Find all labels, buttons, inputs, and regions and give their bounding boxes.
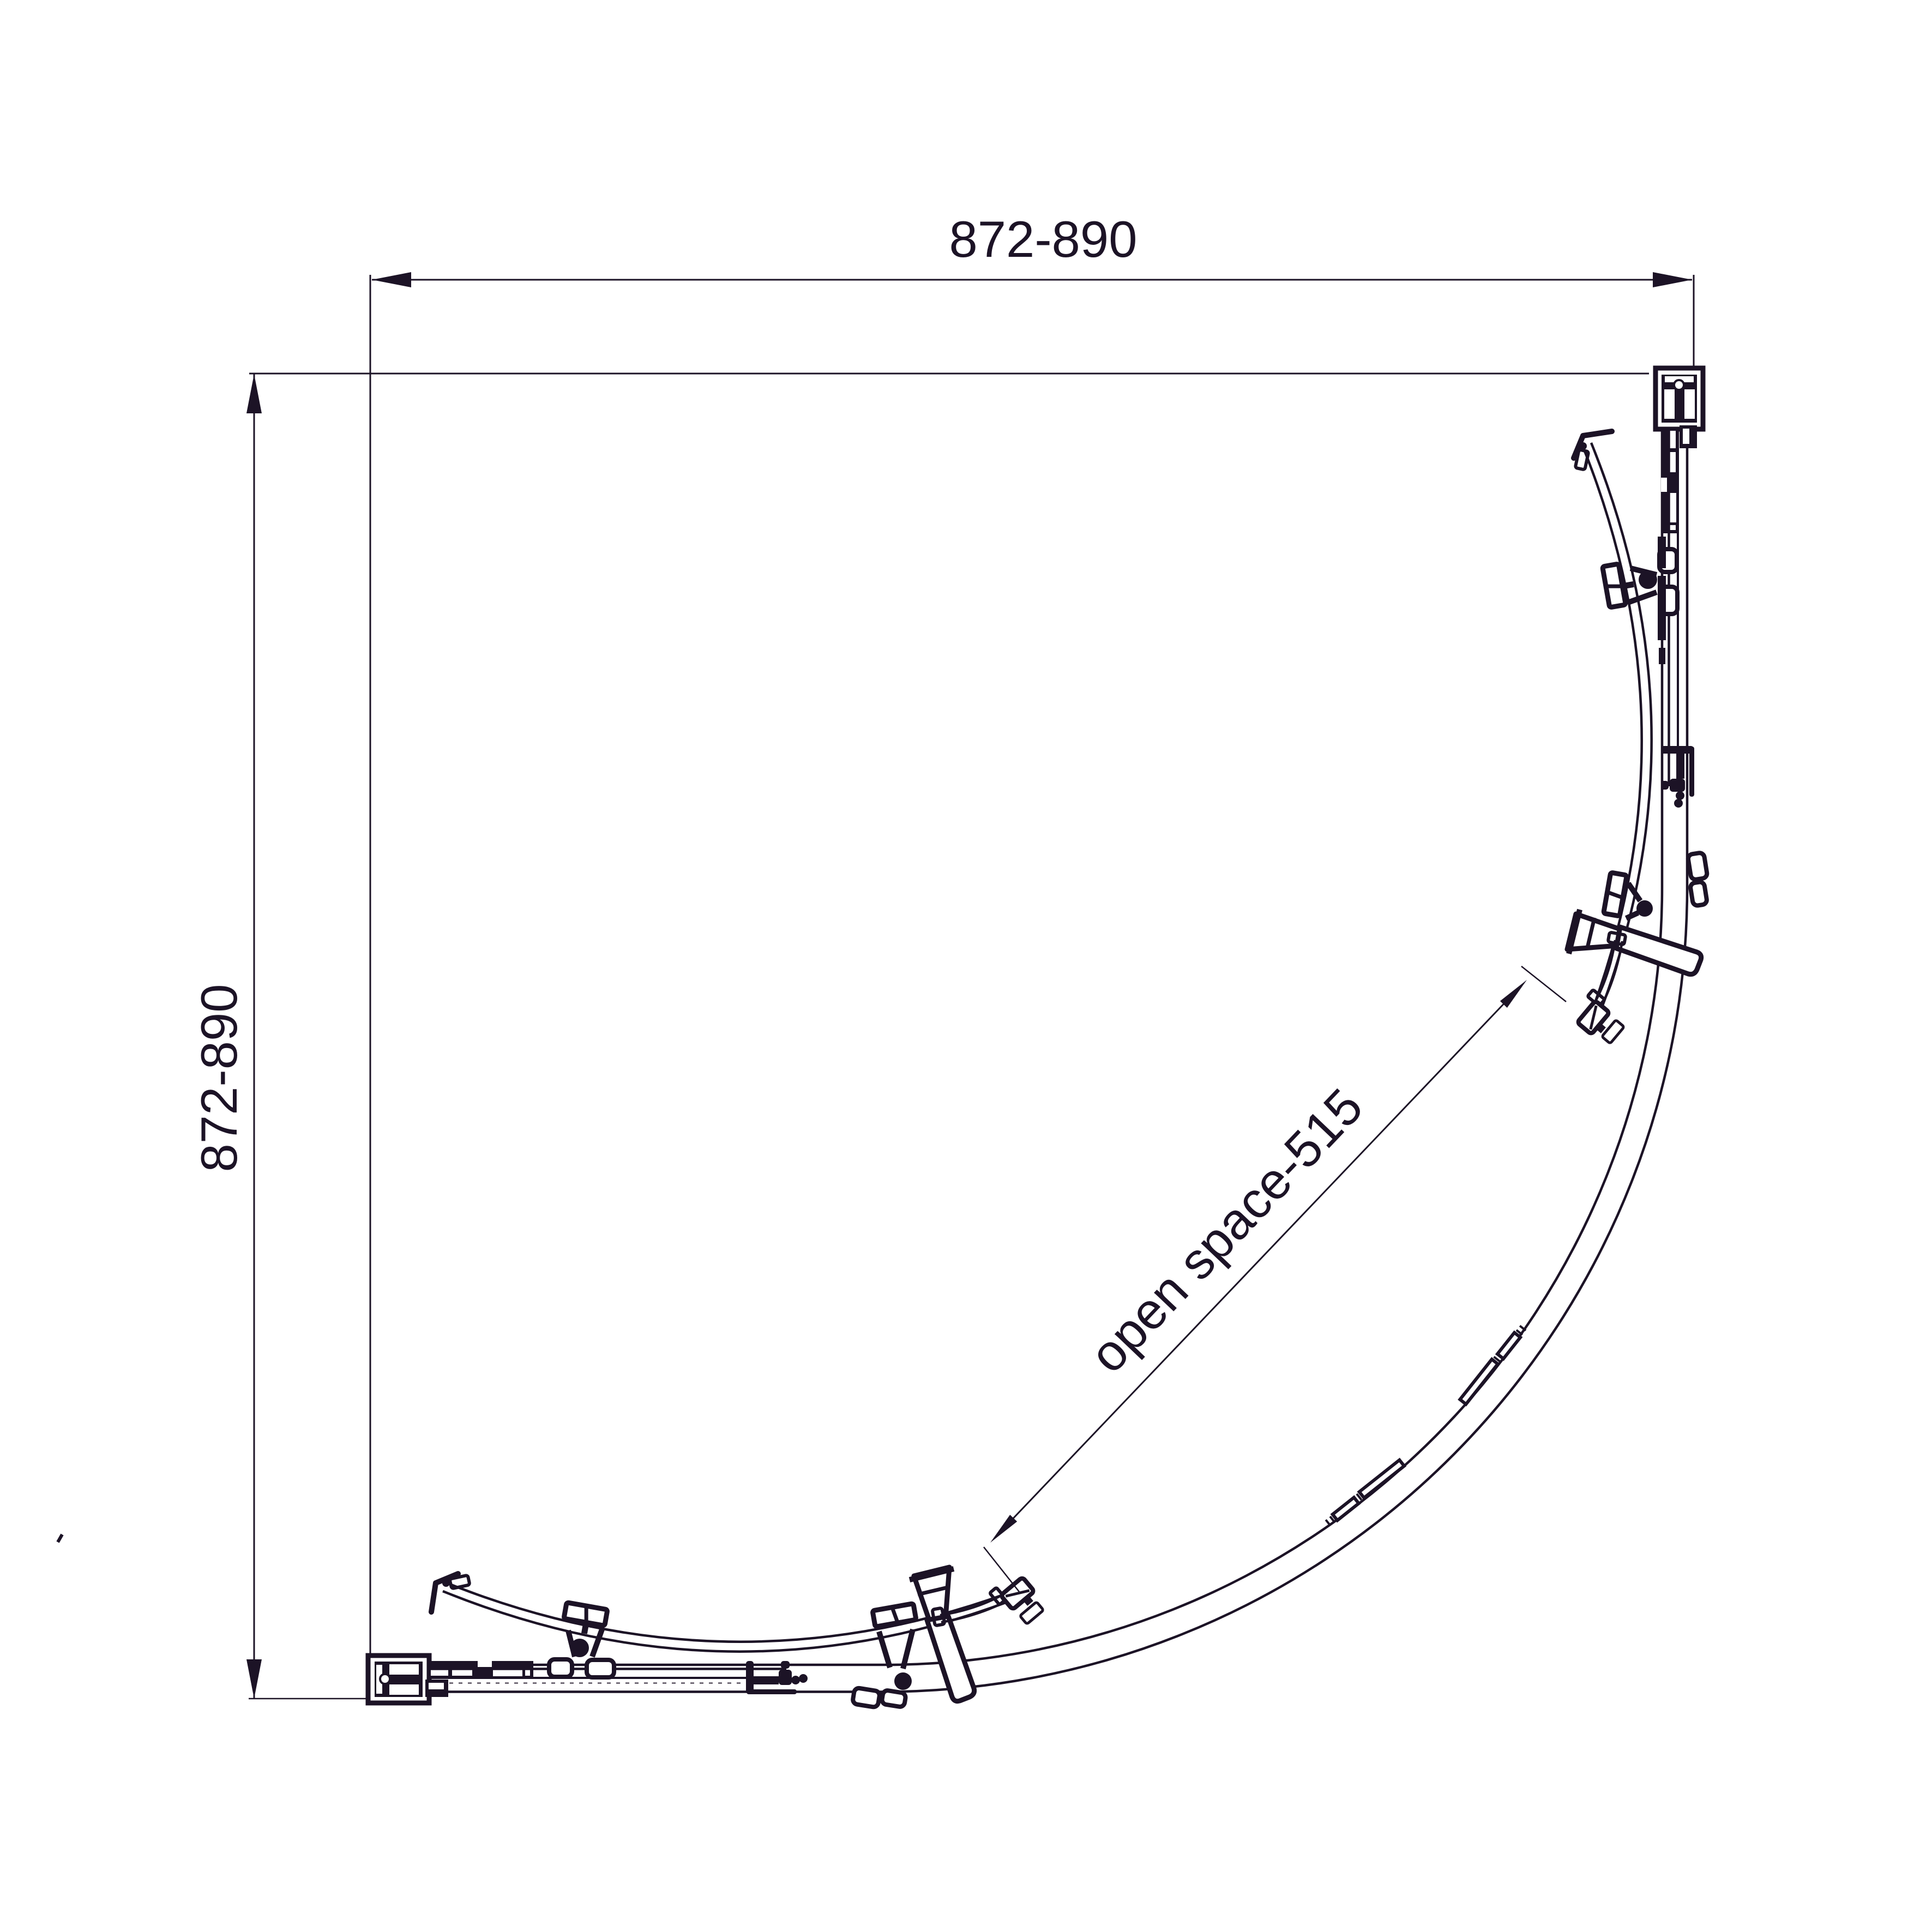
svg-text:872-890: 872-890 [190,984,248,1172]
svg-text:872-890: 872-890 [949,210,1137,268]
